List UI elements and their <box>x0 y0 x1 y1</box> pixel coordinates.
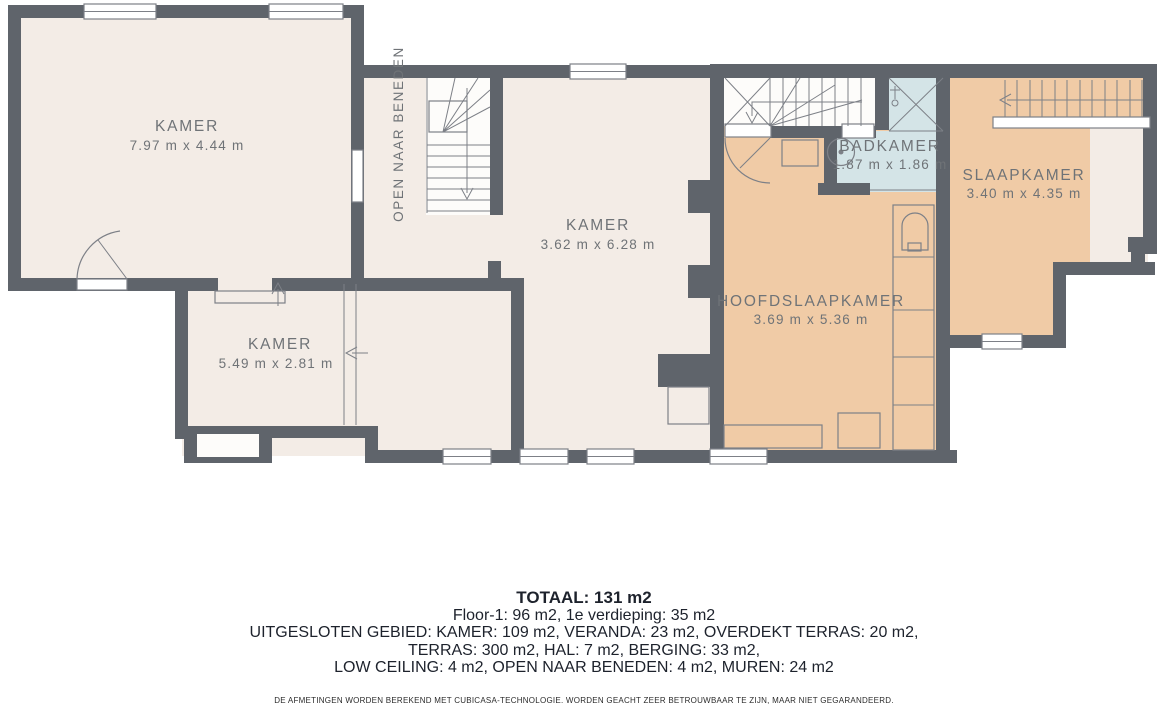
open-naar-beneden-label: OPEN NAAR BENEDEN <box>391 46 406 222</box>
door-threshold <box>77 279 127 290</box>
total-area: TOTAAL: 131 m2 <box>0 588 1168 607</box>
room-label-badkamer: BADKAMER <box>839 138 940 155</box>
disclaimer-text: DE AFMETINGEN WORDEN BEREKEND MET CUBICA… <box>0 696 1168 705</box>
room-label-kamer-topleft: KAMER <box>155 118 219 135</box>
room-dims-slaapkamer: 3.40 m x 4.35 m <box>967 186 1082 201</box>
stair-rail <box>993 117 1150 128</box>
floor-plan: KAMER 7.97 m x 4.44 m KAMER 3.62 m x 6.2… <box>0 0 1168 530</box>
window <box>269 4 343 19</box>
summary-line-excluded: UITGESLOTEN GEBIED: KAMER: 109 m2, VERAN… <box>0 624 1168 641</box>
door-threshold <box>842 124 874 138</box>
window <box>587 449 634 464</box>
room-label-slaapkamer: SLAAPKAMER <box>962 167 1085 184</box>
summary-line-floors: Floor-1: 96 m2, 1e verdieping: 35 m2 <box>0 607 1168 624</box>
window <box>520 449 568 464</box>
room-dims-hoofdslaapkamer: 3.69 m x 5.36 m <box>754 312 869 327</box>
summary-line-terras: TERRAS: 300 m2, HAL: 7 m2, BERGING: 33 m… <box>0 642 1168 659</box>
door-gap <box>218 278 272 291</box>
room-dims-kamer-topleft: 7.97 m x 4.44 m <box>130 138 245 153</box>
room-label-kamer-middle: KAMER <box>566 217 630 234</box>
room-label-hoofdslaapkamer: HOOFDSLAAPKAMER <box>717 293 905 310</box>
outside-cut <box>1066 275 1168 350</box>
room-label-kamer-bottomleft: KAMER <box>248 336 312 353</box>
wall-opening <box>352 150 363 202</box>
room-dims-badkamer: 1.87 m x 1.86 m <box>833 157 948 172</box>
door-threshold <box>725 124 771 137</box>
window <box>84 4 156 19</box>
room-dims-kamer-bottomleft: 5.49 m x 2.81 m <box>219 356 334 371</box>
window <box>570 64 626 79</box>
area-summary: TOTAAL: 131 m2 Floor-1: 96 m2, 1e verdie… <box>0 588 1168 677</box>
room-dims-kamer-middle: 3.62 m x 6.28 m <box>541 237 656 252</box>
summary-line-lowceiling: LOW CEILING: 4 m2, OPEN NAAR BENEDEN: 4 … <box>0 659 1168 676</box>
window <box>710 449 767 464</box>
window <box>443 449 491 464</box>
floor-plan-svg: KAMER 7.97 m x 4.44 m KAMER 3.62 m x 6.2… <box>0 0 1168 530</box>
window <box>982 334 1022 349</box>
